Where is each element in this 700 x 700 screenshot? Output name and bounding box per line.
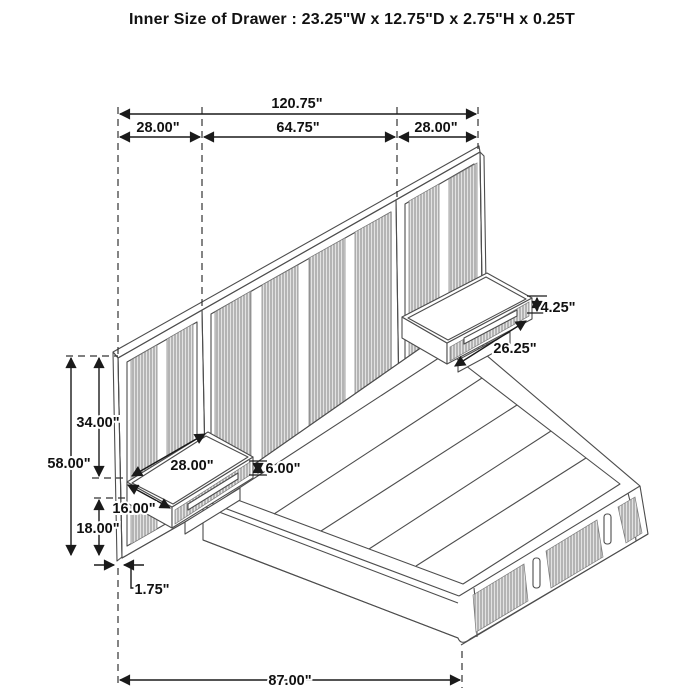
dim-center-section-label: 64.75" <box>276 120 319 136</box>
dim-total-height-label: 58.00" <box>47 456 90 472</box>
dim-upper-height-label: 34.00" <box>76 415 119 431</box>
dim-right-section-label: 28.00" <box>414 120 457 136</box>
dim-panel-thickness-label: 1.75" <box>134 582 169 598</box>
dim-overall-depth-label: 87.00" <box>268 673 311 689</box>
footboard-handle-left <box>533 558 540 588</box>
dim-nightstand-height-label: 6.00" <box>265 461 300 477</box>
dim-overall-width-label: 120.75" <box>271 96 322 112</box>
footboard-handle-right <box>604 514 611 544</box>
dim-floor-clearance-label: 18.00" <box>76 521 119 537</box>
page-title: Inner Size of Drawer : 23.25"W x 12.75"D… <box>129 11 575 28</box>
dim-left-section-label: 28.00" <box>136 120 179 136</box>
dim-nightstand-depth-label: 16.00" <box>112 501 155 517</box>
technical-drawing-page: 120.75" 28.00" 64.75" 28.00" 58.00" 34.0… <box>0 0 700 700</box>
diagram-canvas: 120.75" 28.00" 64.75" 28.00" 58.00" 34.0… <box>0 0 700 700</box>
dim-right-nightstand-width-label: 26.25" <box>493 341 536 357</box>
dim-drawer-face-height-label: 4.25" <box>540 300 575 316</box>
dim-left-nightstand-width-label: 28.00" <box>170 458 213 474</box>
